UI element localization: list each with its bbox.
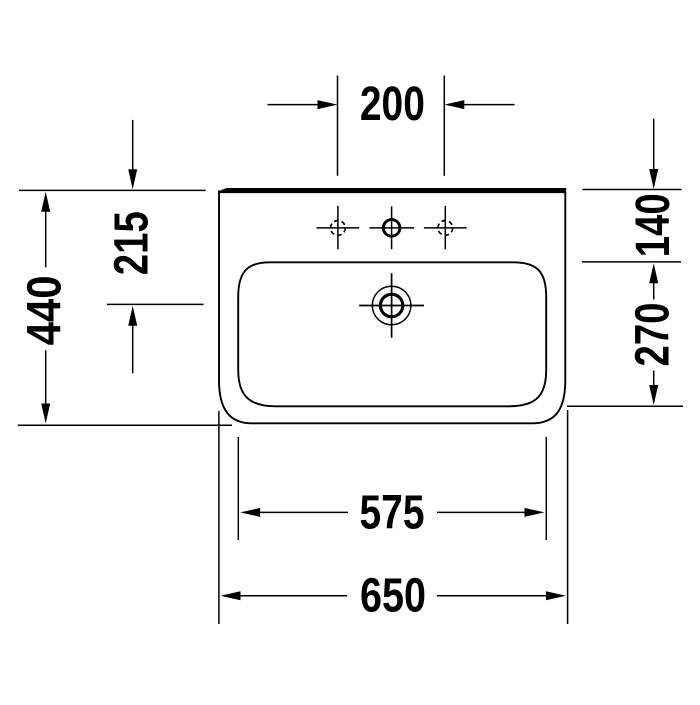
svg-text:140: 140 xyxy=(627,193,680,257)
svg-text:200: 200 xyxy=(360,78,425,131)
svg-text:440: 440 xyxy=(19,275,72,345)
svg-text:270: 270 xyxy=(626,303,679,367)
svg-text:650: 650 xyxy=(360,569,426,622)
svg-text:575: 575 xyxy=(360,487,425,540)
svg-text:215: 215 xyxy=(106,211,159,275)
